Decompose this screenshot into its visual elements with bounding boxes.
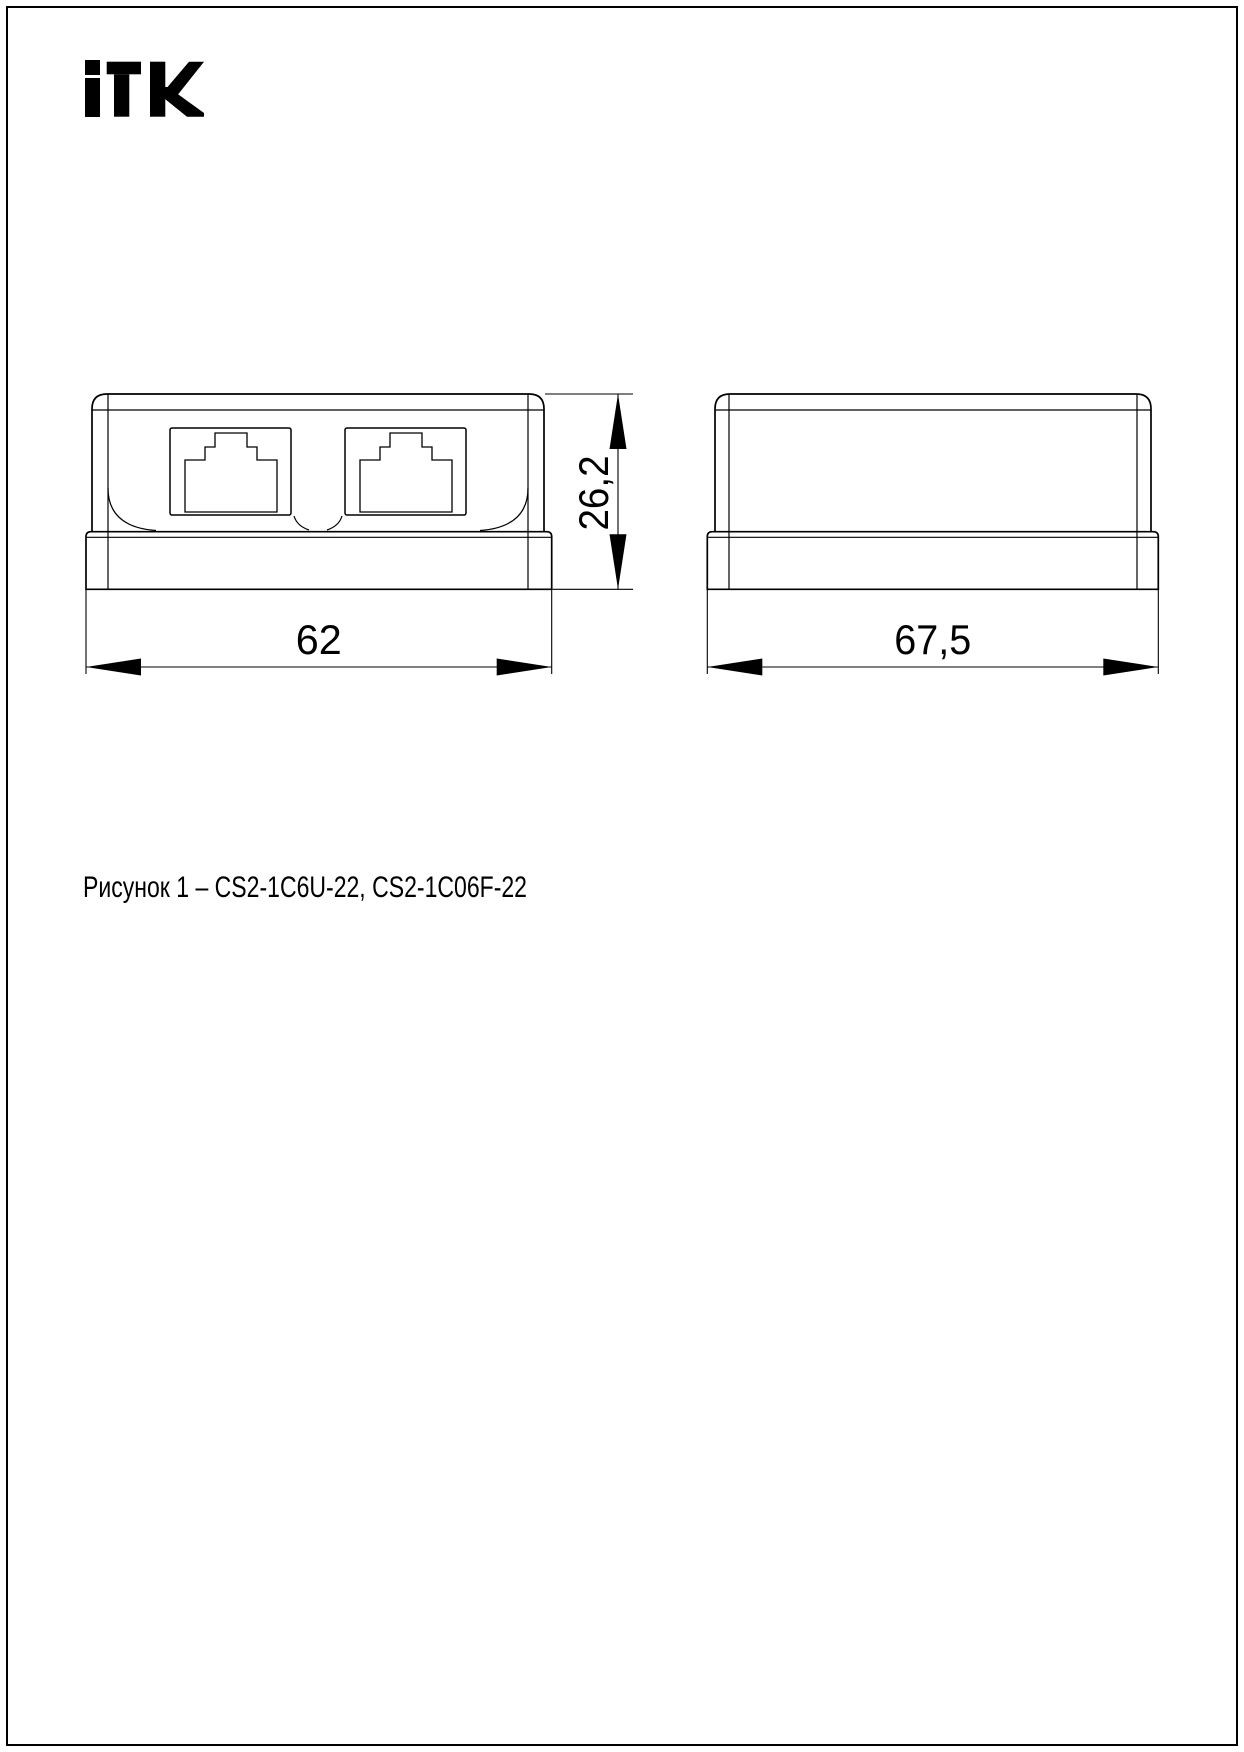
logo-t-stem: [114, 74, 129, 116]
side-depth-value: 67,5: [894, 616, 971, 663]
logo-t-bar: [107, 62, 141, 75]
logo-i-dot: [85, 60, 100, 75]
arrowhead-right: [497, 659, 552, 676]
front-center-notch-left: [294, 516, 309, 530]
side-view: 67,5: [707, 394, 1158, 676]
front-body-outline: [92, 394, 544, 532]
logo-i-stem: [85, 78, 100, 117]
rj45-right-socket-profile: [360, 433, 452, 512]
side-body-outline: [715, 394, 1151, 532]
rj45-right-opening: [345, 428, 466, 515]
front-left-fillet: [108, 488, 156, 531]
arrowhead-bottom: [610, 534, 627, 589]
rj45-left-socket-profile: [185, 433, 277, 512]
front-view: 62 26,2: [86, 394, 633, 676]
arrowhead-top: [610, 394, 627, 449]
itk-logo: [85, 60, 204, 117]
front-height-value: 26,2: [570, 456, 617, 531]
front-center-notch-right: [327, 516, 342, 530]
arrowhead-right: [1103, 659, 1158, 676]
front-height-dimension: 26,2: [545, 394, 633, 589]
technical-drawing: 62 26,2 67,5 Рисунок 1 – CS2-1C6: [0, 0, 1244, 1752]
logo-k-stem: [150, 62, 165, 117]
front-base-plate: [86, 532, 552, 590]
rj45-left-opening: [170, 428, 291, 515]
rj45-port-right: [345, 428, 466, 515]
front-right-fillet: [480, 488, 528, 531]
side-depth-dimension: 67,5: [707, 589, 1158, 675]
side-base-plate: [707, 532, 1158, 590]
rj45-port-left: [170, 428, 291, 515]
arrowhead-left: [86, 659, 141, 676]
front-width-dimension: 62: [86, 589, 552, 675]
front-width-value: 62: [296, 616, 342, 663]
drawing-page: 62 26,2 67,5 Рисунок 1 – CS2-1C6: [0, 0, 1244, 1752]
figure-caption: Рисунок 1 – CS2-1C6U-22, CS2-1C06F-22: [83, 871, 527, 904]
arrowhead-left: [707, 659, 762, 676]
logo-k-lower-arm: [165, 87, 204, 117]
